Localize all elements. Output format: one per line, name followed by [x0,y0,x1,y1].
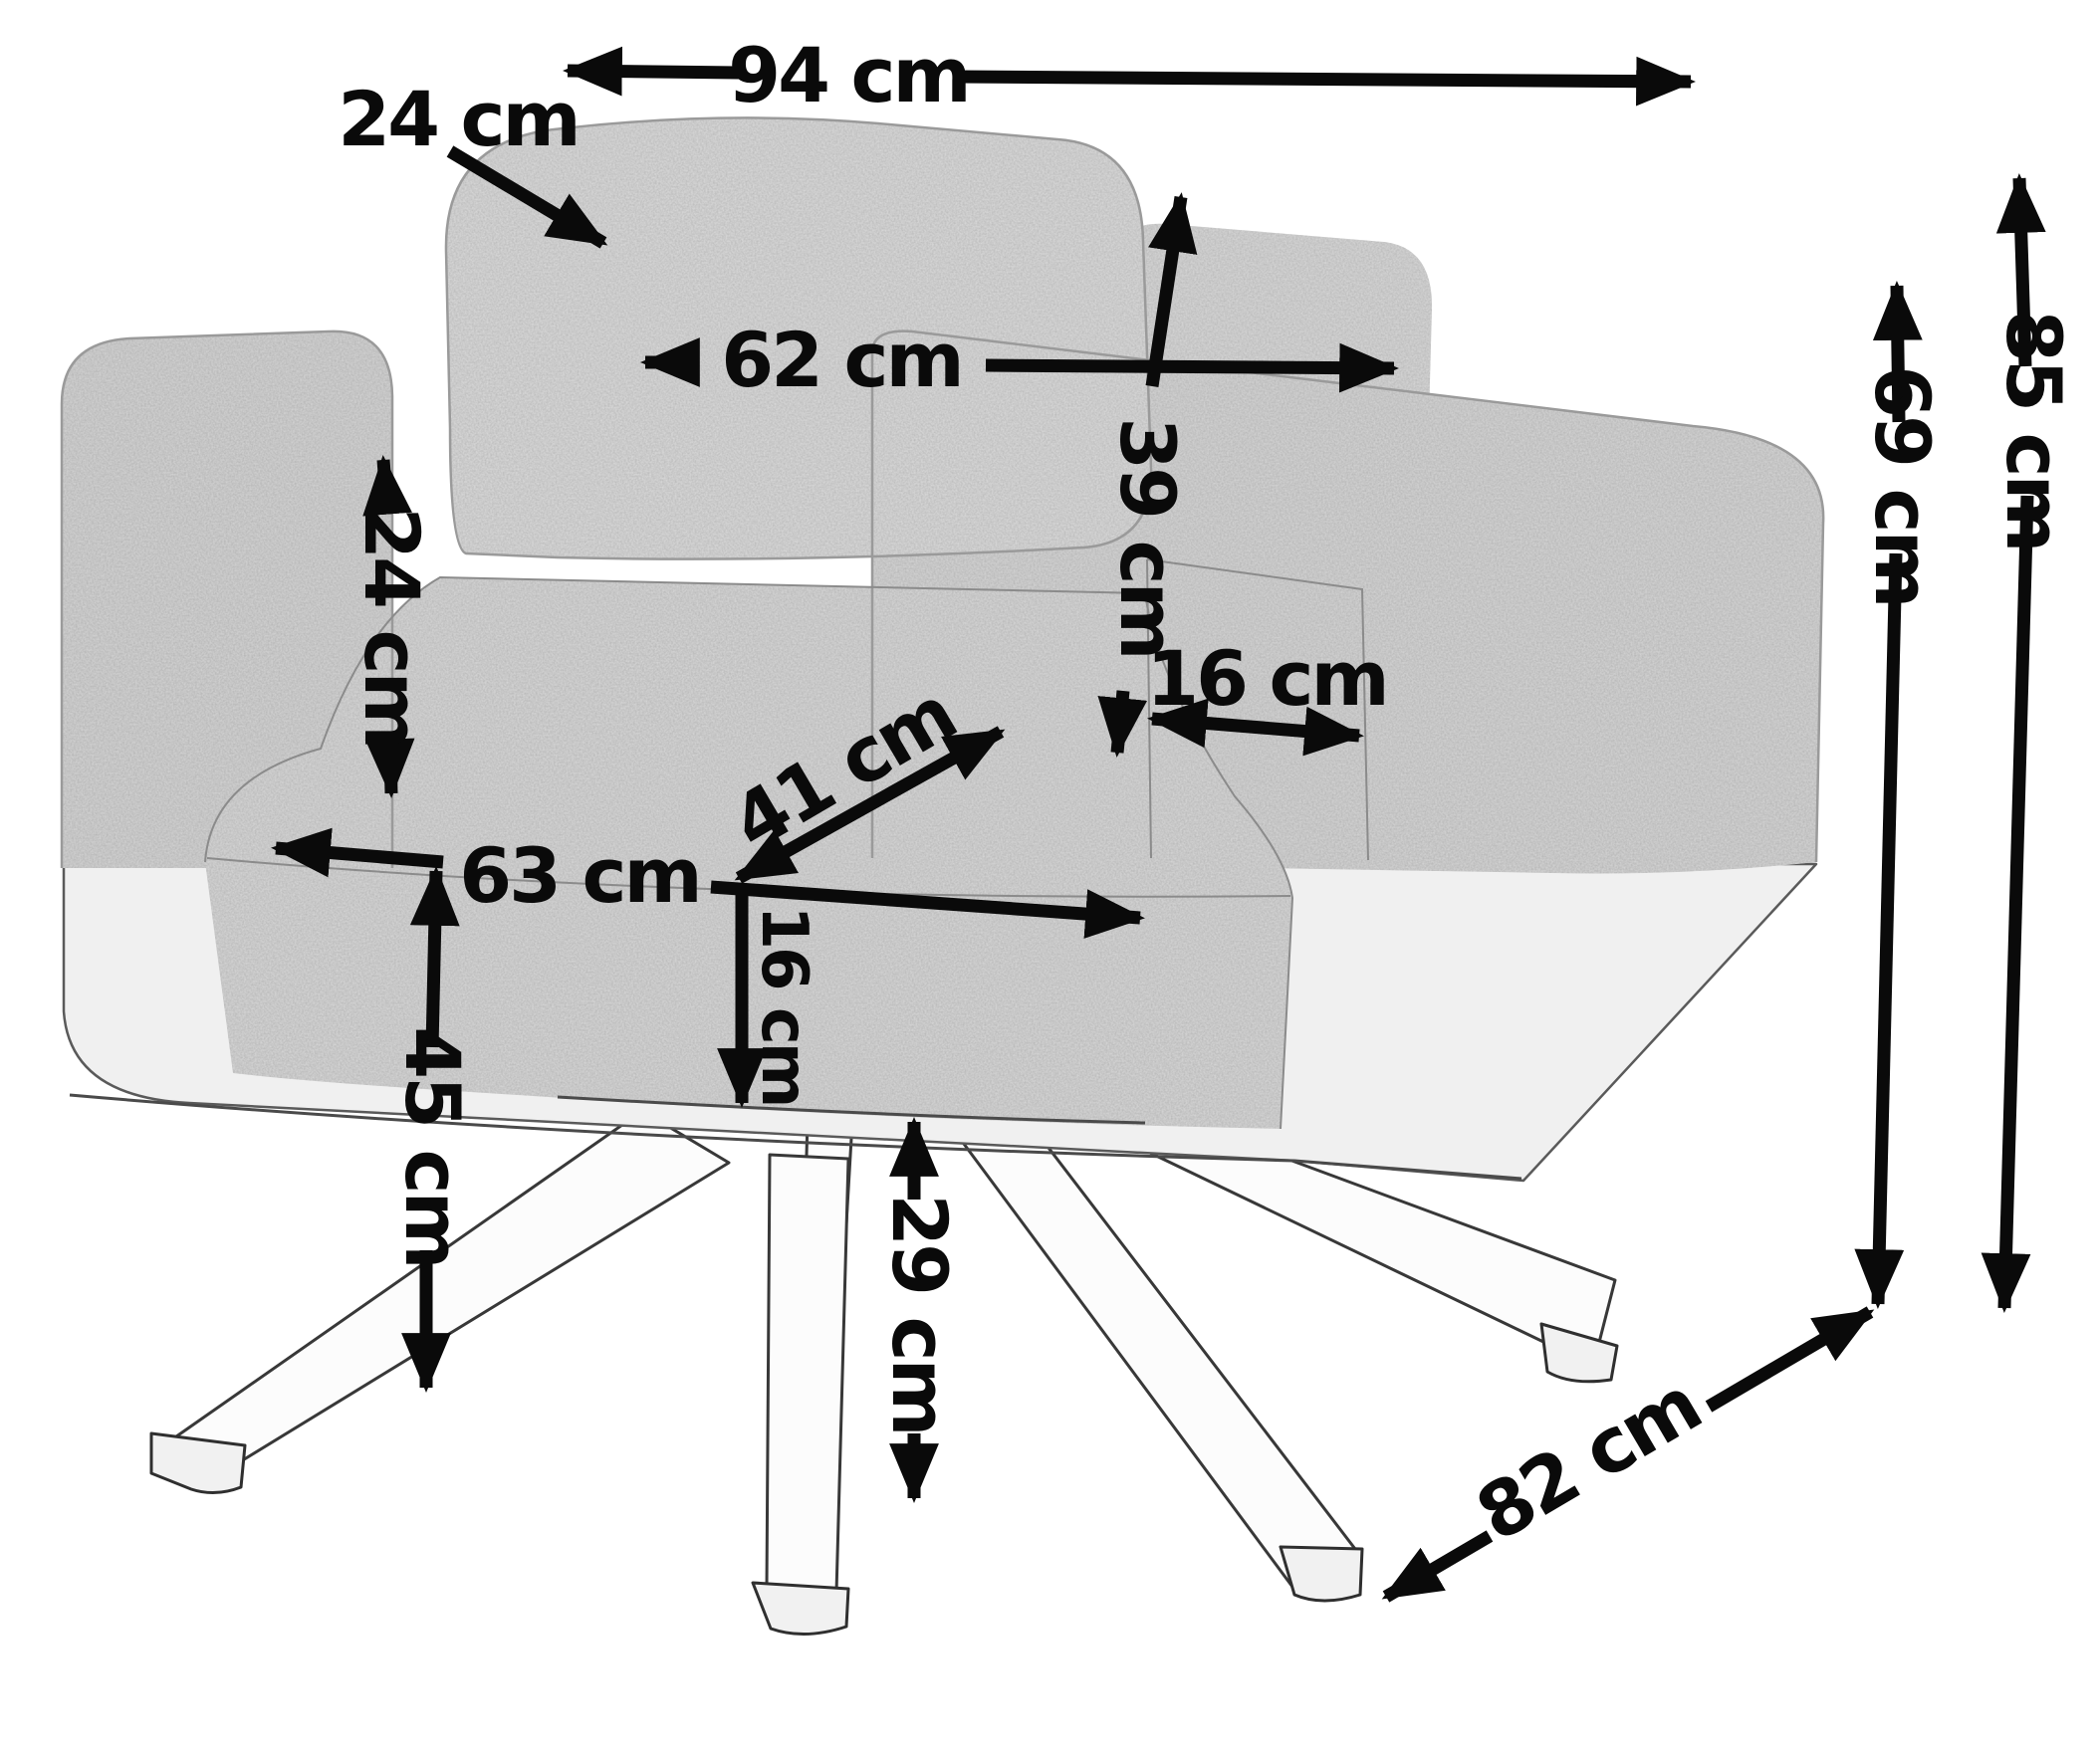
dimension-overall-height: 85 cm [1989,178,2078,1308]
seat-cushion-thickness-label: 16 cm [747,906,820,1106]
armrest-total-height-label: 69 cm [1858,365,1947,605]
leg-front-foot [753,1583,848,1635]
seat-width-label: 63 cm [459,831,699,920]
overall-width-label: 94 cm [728,31,968,119]
leg-front-left-foot [151,1433,245,1493]
diagram-canvas: 94 cm 24 cm 62 cm 39 cm 24 cm 16 cm 63 c… [0,0,2100,1752]
back-cushion-width-label: 62 cm [721,316,961,404]
overall-depth-label: 82 cm [1462,1360,1714,1558]
armrest-width-label: 16 cm [1146,634,1386,723]
dimension-seat-cushion-thickness: 16 cm [742,889,820,1105]
base-clearance-label: 29 cm [875,1194,964,1433]
leg-front [767,1155,848,1593]
dimension-diagram: 94 cm 24 cm 62 cm 39 cm 24 cm 16 cm 63 c… [0,0,2100,1752]
dimension-overall-depth: 82 cm [1386,1312,1870,1597]
dimension-armrest-total-height: 69 cm [1858,286,1947,1304]
leg-front-right-foot [1281,1547,1362,1601]
dimension-base-clearance: 29 cm [875,1122,964,1498]
dimension-armrest-height-above-seat: 24 cm [348,460,436,793]
overall-height-label: 85 cm [1989,310,2078,549]
seat-height-label: 45 cm [388,1026,477,1266]
armrest-height-above-seat-label: 24 cm [348,507,436,747]
back-cushion-height-label: 39 cm [1103,417,1192,657]
dimension-overall-width: 94 cm [568,31,1691,119]
dimension-armrest-width: 16 cm [1146,634,1386,736]
